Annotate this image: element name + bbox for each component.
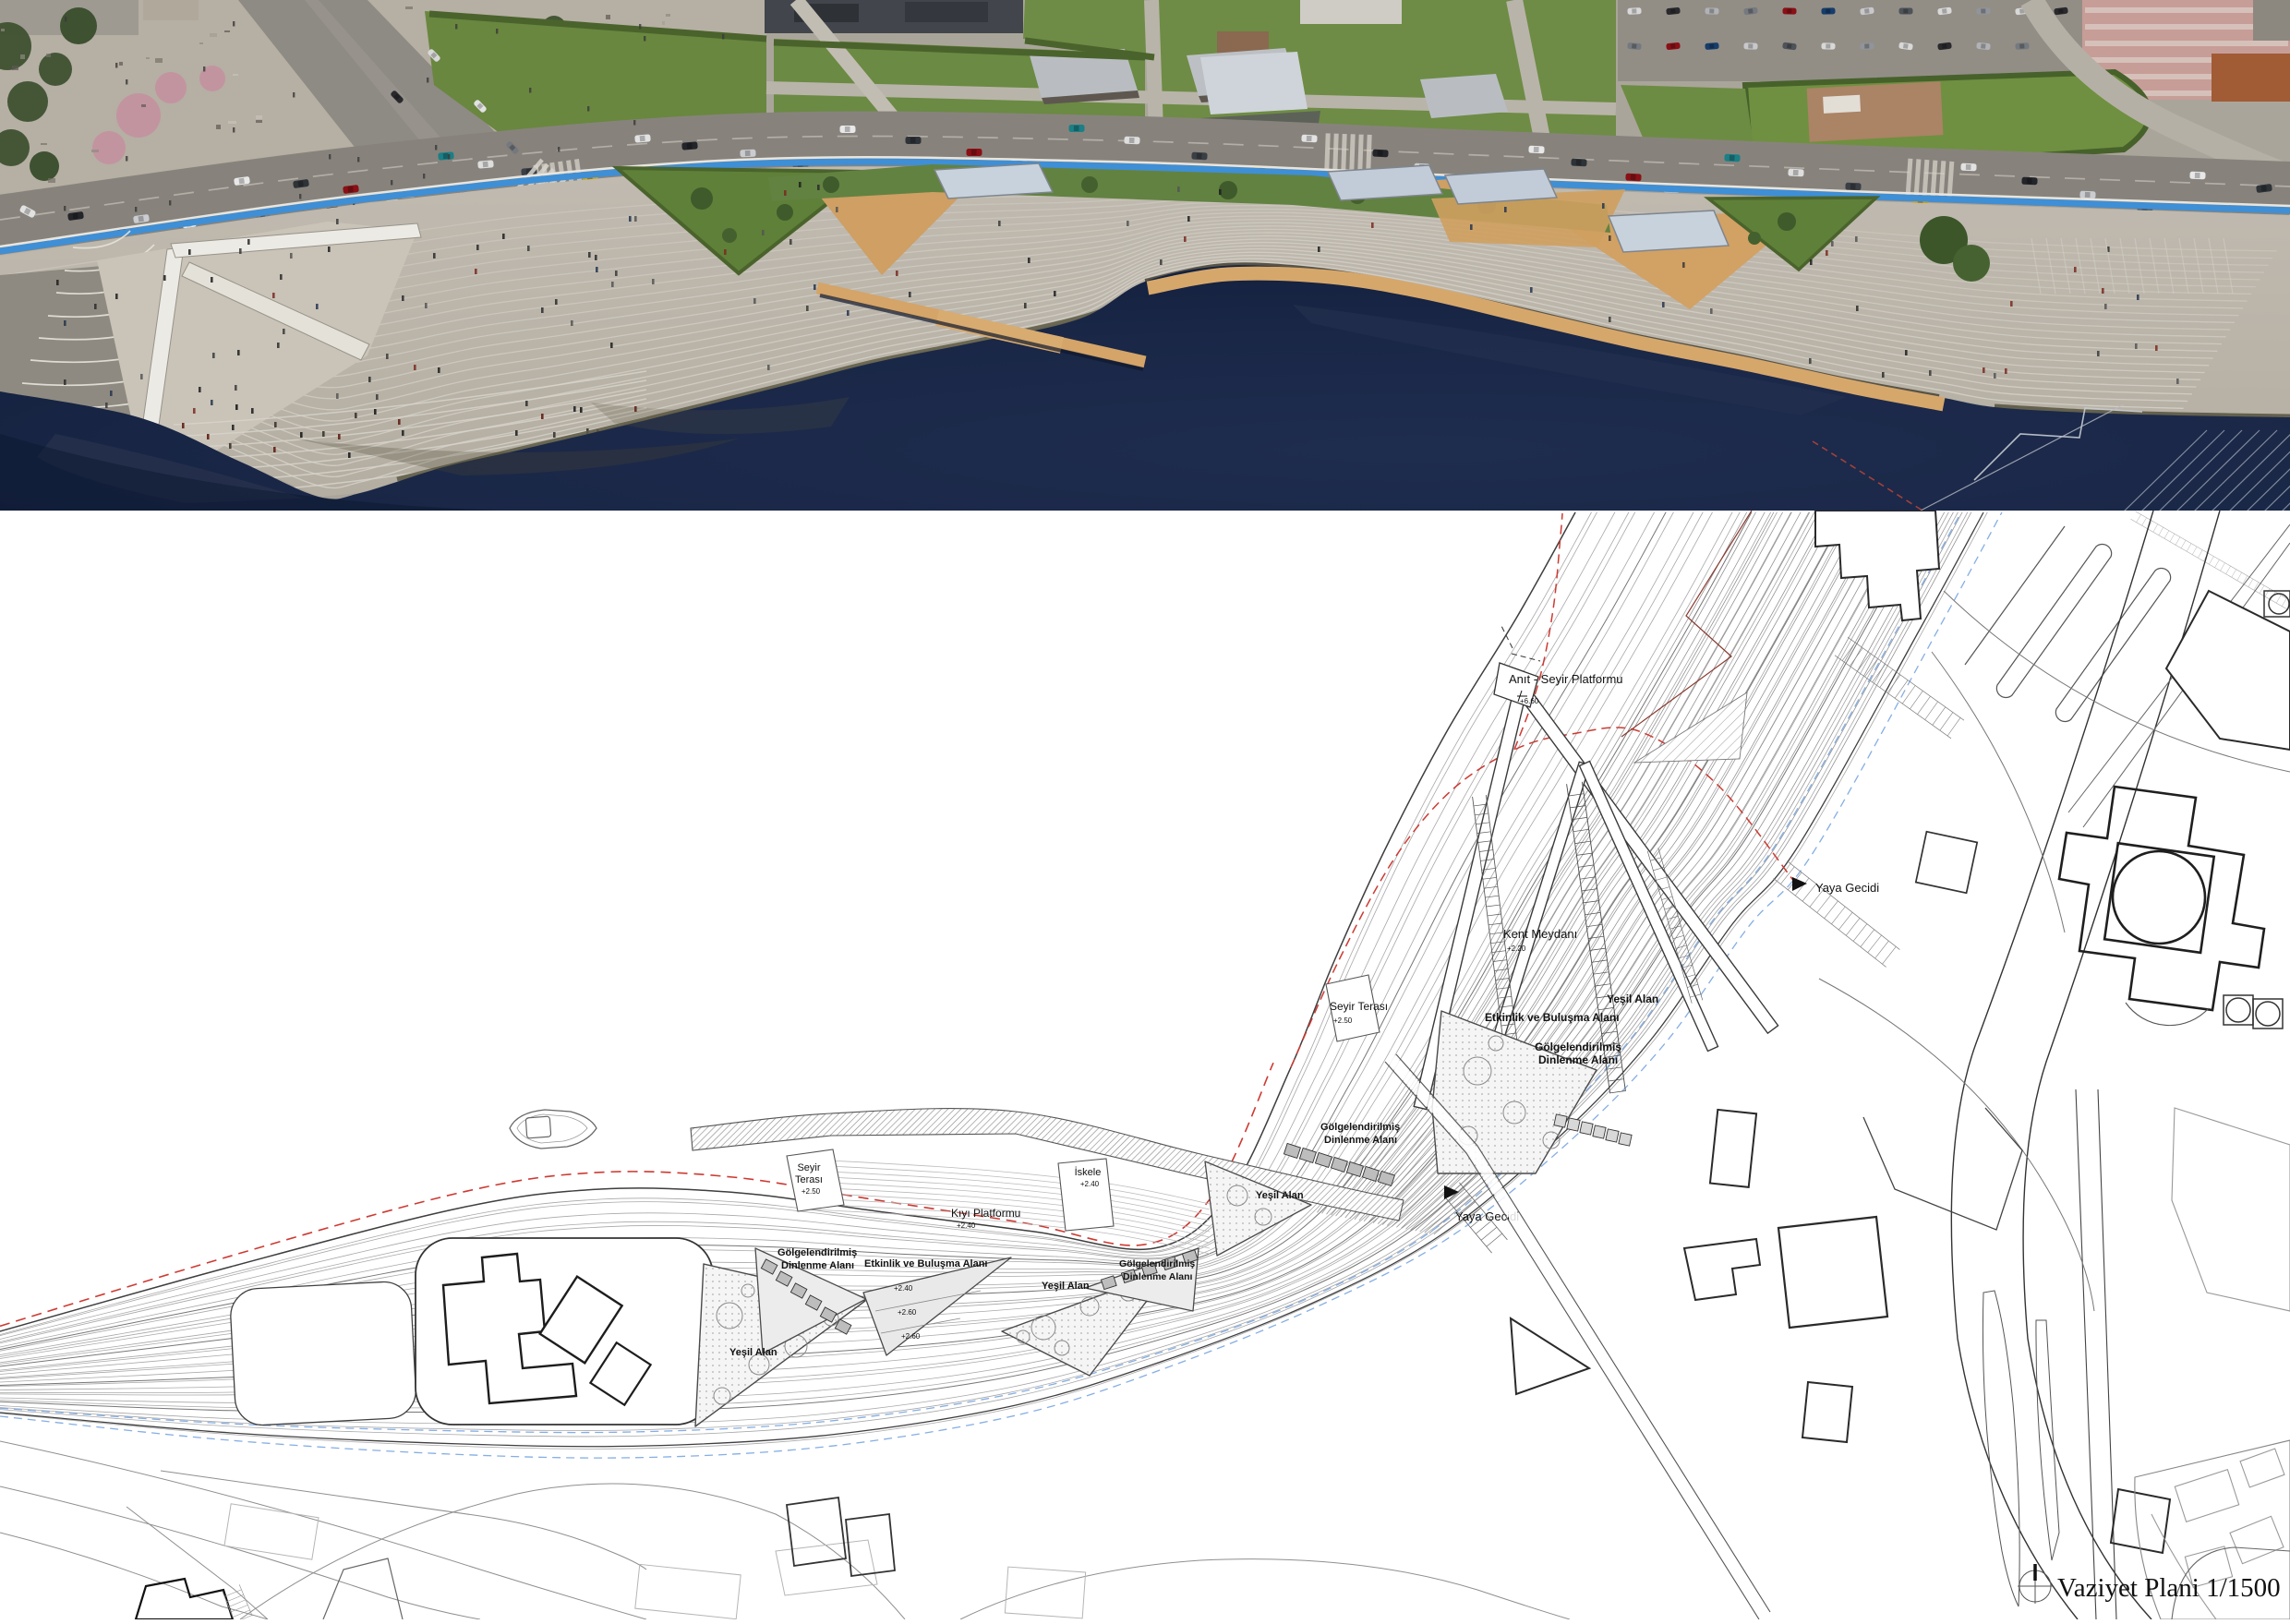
svg-text:+2.20: +2.20	[1507, 944, 1526, 953]
svg-text:Etkinlik ve Buluşma Alanı: Etkinlik ve Buluşma Alanı	[1485, 1011, 1620, 1024]
svg-text:+6.60: +6.60	[1520, 697, 1539, 705]
svg-text:Seyir: Seyir	[797, 1162, 820, 1173]
svg-text:Yaya Gecidi: Yaya Gecidi	[1815, 881, 1879, 895]
svg-text:Kıyı Platformu: Kıyı Platformu	[951, 1207, 1020, 1220]
svg-text:Yeşil Alan: Yeşil Alan	[1042, 1281, 1090, 1292]
svg-text:Kent Meydanı: Kent Meydanı	[1503, 927, 1577, 941]
svg-text:+2.40: +2.40	[1080, 1180, 1100, 1188]
svg-text:Vaziyet Plani 1/1500: Vaziyet Plani 1/1500	[2057, 1573, 2281, 1603]
svg-text:Yeşil Alan: Yeşil Alan	[729, 1347, 777, 1358]
svg-text:Dinlenme Alanı: Dinlenme Alanı	[1123, 1271, 1193, 1282]
svg-text:Seyir Terası: Seyir Terası	[1330, 1000, 1388, 1013]
svg-text:Yeşil Alan: Yeşil Alan	[1256, 1190, 1304, 1201]
svg-text:Gölgelendirilmiş: Gölgelendirilmiş	[1119, 1258, 1195, 1269]
svg-text:+2.50: +2.50	[1333, 1017, 1353, 1025]
svg-text:Gölgelendirilmiş: Gölgelendirilmiş	[1320, 1122, 1400, 1133]
svg-text:+2.60: +2.60	[901, 1332, 921, 1341]
svg-text:Terası: Terası	[795, 1174, 823, 1185]
svg-text:Dinlenme Alanı: Dinlenme Alanı	[1324, 1135, 1397, 1146]
svg-text:Yeşil Alan: Yeşil Alan	[1607, 992, 1658, 1005]
svg-text:+2.40: +2.40	[894, 1284, 913, 1293]
svg-text:Gölgelendirilmiş: Gölgelendirilmiş	[777, 1247, 857, 1258]
svg-text:Dinlenme Alanı: Dinlenme Alanı	[781, 1260, 854, 1271]
svg-text:Gölgelendirilmiş: Gölgelendirilmiş	[1535, 1041, 1621, 1053]
svg-text:Anıt - Seyir Platformu: Anıt - Seyir Platformu	[1509, 672, 1623, 686]
svg-text:+2.50: +2.50	[801, 1187, 821, 1196]
svg-text:Dinlenme Alanı: Dinlenme Alanı	[1538, 1053, 1618, 1066]
svg-text:+2.60: +2.60	[898, 1308, 917, 1317]
svg-text:İskele: İskele	[1075, 1166, 1102, 1178]
svg-text:Etkinlik ve Buluşma Alanı: Etkinlik ve Buluşma Alanı	[864, 1258, 987, 1269]
svg-text:+2.40: +2.40	[957, 1221, 976, 1230]
